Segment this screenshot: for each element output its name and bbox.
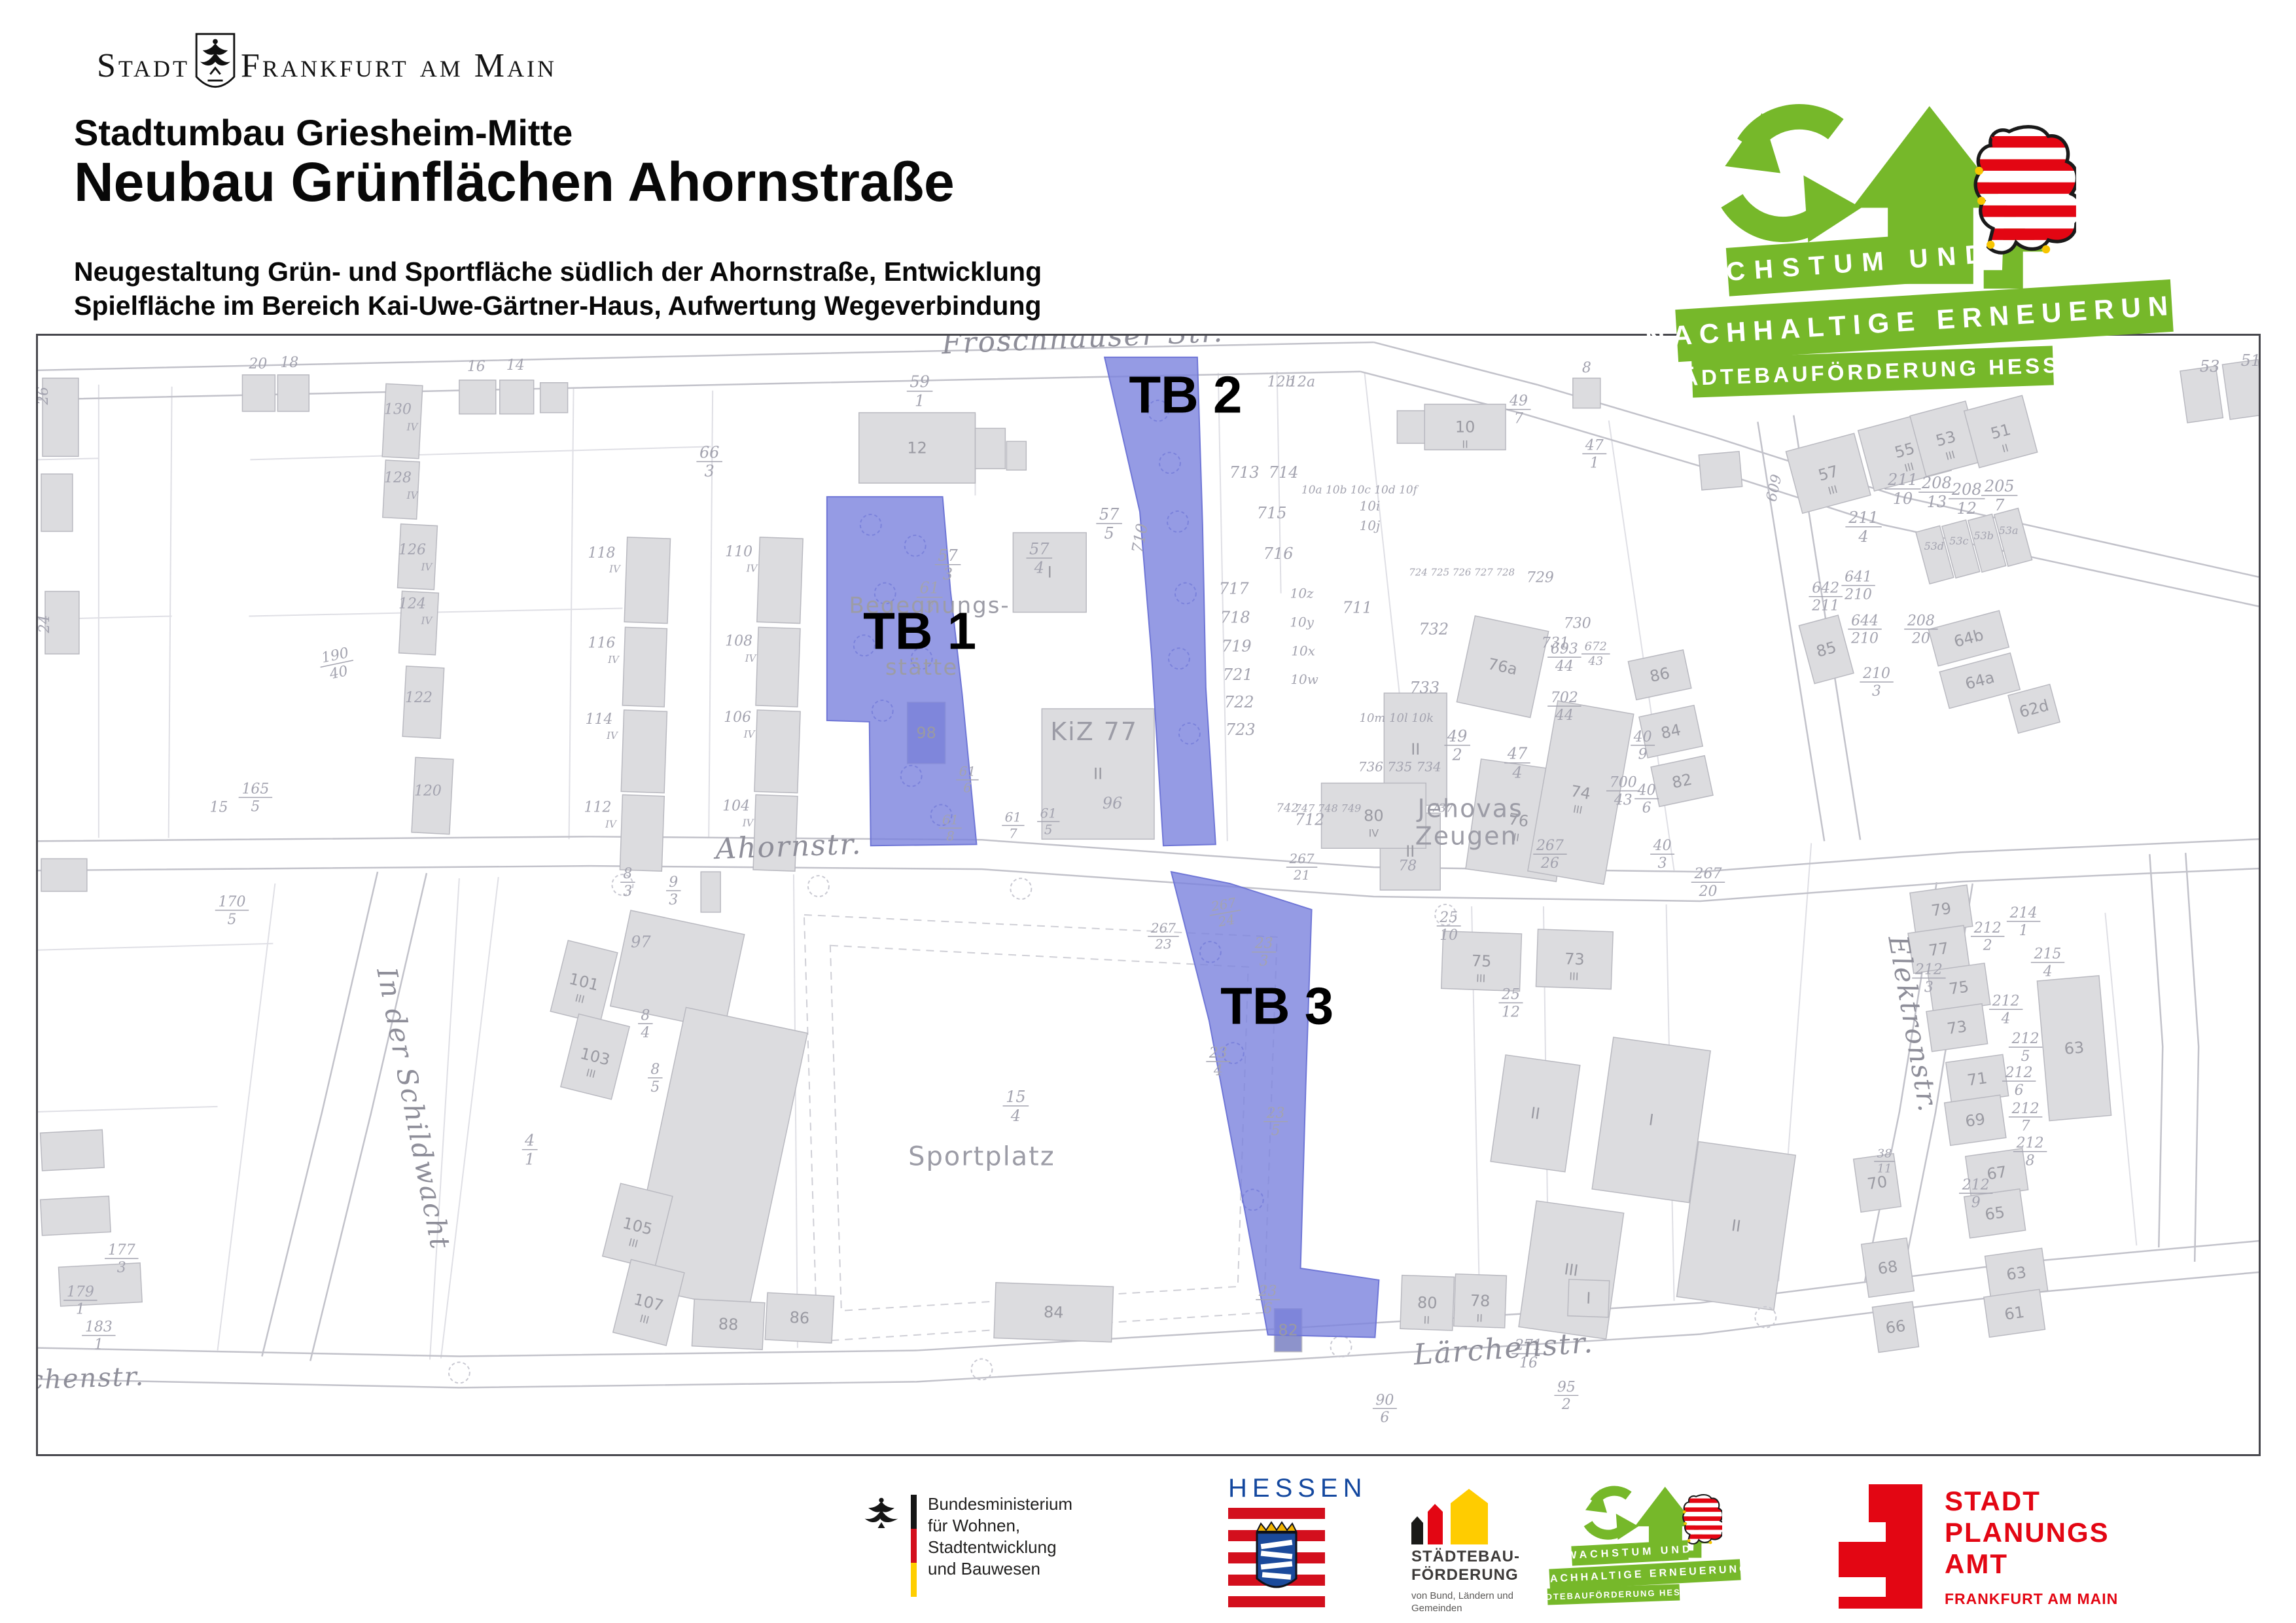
svg-text:20: 20 xyxy=(1911,630,1930,647)
svg-text:729: 729 xyxy=(1527,570,1554,586)
svg-text:47: 47 xyxy=(1585,437,1604,454)
svg-text:TB 1: TB 1 xyxy=(863,601,976,660)
svg-text:20: 20 xyxy=(248,356,267,372)
svg-text:212: 212 xyxy=(2005,1065,2033,1081)
parcel-label: IV xyxy=(606,730,619,741)
svg-text:6: 6 xyxy=(963,780,972,796)
svg-text:13: 13 xyxy=(1927,493,1947,511)
parcel-label: 713 xyxy=(1229,463,1260,482)
parcel-label: 715 xyxy=(1257,504,1287,522)
building-label: 82 xyxy=(1278,1321,1298,1340)
parcel-boundary-line xyxy=(250,446,711,459)
svg-text:212: 212 xyxy=(1973,920,2002,936)
spa-line4: FRANKFURT AM MAIN xyxy=(1945,1590,2118,1608)
parcel-label: 122 xyxy=(405,690,433,706)
svg-text:65: 65 xyxy=(1984,1203,2006,1224)
svg-text:8: 8 xyxy=(2026,1153,2035,1169)
svg-text:714: 714 xyxy=(1269,463,1299,482)
parcel-label: 10i xyxy=(1360,498,1381,514)
building xyxy=(540,383,568,413)
parcel-label: 114 xyxy=(586,711,613,728)
svg-text:III: III xyxy=(1476,972,1486,984)
svg-text:116: 116 xyxy=(588,635,616,651)
svg-text:9: 9 xyxy=(669,874,678,891)
building xyxy=(620,794,664,871)
building-label: II xyxy=(1411,740,1420,758)
parcel-label: IV xyxy=(607,654,620,666)
building-label: 88 xyxy=(718,1315,739,1334)
parcel-label: 83 xyxy=(620,866,635,900)
svg-text:69: 69 xyxy=(1964,1110,1987,1131)
svg-text:1: 1 xyxy=(1590,455,1599,471)
svg-text:10j: 10j xyxy=(1360,518,1381,533)
parcel-label: 116 xyxy=(588,635,616,651)
parcel-label: 96 xyxy=(1103,794,1122,812)
parcel-label: 118 xyxy=(588,545,616,562)
svg-text:47: 47 xyxy=(1507,745,1528,763)
svg-text:1: 1 xyxy=(94,1337,103,1353)
svg-text:59: 59 xyxy=(910,373,929,391)
spa-line2: PLANUNGS xyxy=(1945,1517,2110,1548)
svg-text:719: 719 xyxy=(1222,637,1252,655)
building xyxy=(624,537,670,624)
svg-text:79: 79 xyxy=(1930,899,1952,920)
building-label: 65 xyxy=(1984,1203,2006,1224)
svg-text:38: 38 xyxy=(1877,1147,1892,1161)
parcel-label: 20 xyxy=(248,356,267,372)
svg-text:718: 718 xyxy=(1220,608,1250,626)
svg-text:4: 4 xyxy=(1858,527,1868,546)
parcel-label: 41 xyxy=(522,1132,538,1169)
building xyxy=(41,1196,111,1236)
svg-text:26: 26 xyxy=(38,387,52,406)
svg-text:7: 7 xyxy=(1994,496,2005,514)
parcel-label: 2512 xyxy=(1499,986,1523,1020)
svg-text:641: 641 xyxy=(1845,569,1872,586)
parcel-label: 14 xyxy=(506,357,525,374)
building xyxy=(610,910,745,1030)
tree-symbol xyxy=(808,876,829,897)
svg-text:40: 40 xyxy=(328,663,350,683)
sportplatz-field-outline xyxy=(830,946,1248,1311)
svg-text:700: 700 xyxy=(1610,775,1637,791)
svg-text:12b: 12b xyxy=(1267,374,1295,391)
svg-text:Jehovas: Jehovas xyxy=(1417,794,1523,823)
parcel-label: 106 xyxy=(724,709,751,726)
parcel-label: 952 xyxy=(1554,1379,1578,1413)
svg-text:733: 733 xyxy=(1409,679,1439,697)
svg-text:16: 16 xyxy=(467,359,486,375)
svg-text:84: 84 xyxy=(1044,1303,1064,1322)
svg-text:208: 208 xyxy=(1907,613,1935,629)
svg-text:98: 98 xyxy=(916,724,936,742)
street-schildwacht-w xyxy=(262,872,378,1356)
plan-page: Stadt Frankfurt am Main Stadtumbau Gries… xyxy=(0,0,2296,1623)
parcel-label: 112 xyxy=(584,799,612,815)
stadtplanungsamt-logo: STADT PLANUNGS AMT FRANKFURT AM MAIN xyxy=(1839,1480,2205,1618)
sbf-sub2: Gemeinden xyxy=(1411,1602,1562,1614)
bundesadler-icon xyxy=(862,1495,900,1535)
svg-text:IV: IV xyxy=(406,421,419,433)
svg-text:Ahornstr.: Ahornstr. xyxy=(713,827,863,866)
svg-text:717: 717 xyxy=(1219,580,1249,598)
building xyxy=(756,627,800,707)
svg-text:208: 208 xyxy=(1951,480,1982,499)
svg-text:5: 5 xyxy=(227,912,236,928)
parcel-label: 712 xyxy=(1295,810,1325,829)
svg-text:77: 77 xyxy=(1928,939,1950,960)
parcel-label: 20813 xyxy=(1918,474,1954,511)
parcel-label: 24 xyxy=(38,615,53,634)
place-label: Zeugen xyxy=(1415,821,1518,850)
svg-text:212: 212 xyxy=(1962,1177,1990,1193)
svg-text:693: 693 xyxy=(1551,641,1578,657)
parcel-label: 641210 xyxy=(1841,569,1875,603)
street-ahorn-n xyxy=(38,836,2259,872)
svg-text:721: 721 xyxy=(1223,666,1253,684)
svg-text:10x: 10x xyxy=(1291,643,1315,658)
svg-text:57: 57 xyxy=(938,546,958,565)
tree-symbol xyxy=(1331,1336,1352,1357)
city-logo-stadt: Stadt xyxy=(97,46,190,85)
parcel-label: 403 xyxy=(1650,838,1674,872)
svg-text:6: 6 xyxy=(1263,1301,1273,1317)
svg-text:170: 170 xyxy=(219,894,246,910)
svg-text:715: 715 xyxy=(1257,504,1287,522)
parcel-label: 736 735 734 xyxy=(1358,759,1441,775)
building-label: III xyxy=(1563,1260,1580,1280)
svg-text:23: 23 xyxy=(1258,1283,1277,1300)
street-name-label: chenstr. xyxy=(38,1361,145,1395)
svg-text:18: 18 xyxy=(280,355,298,371)
svg-text:12: 12 xyxy=(1957,499,1977,518)
parcel-label: 21110 xyxy=(1884,471,1920,508)
svg-text:1: 1 xyxy=(2019,923,2028,939)
parcel-label: 2103 xyxy=(1860,666,1893,700)
parcel-label: 663 xyxy=(696,443,722,480)
parcel-boundary-line xyxy=(569,388,574,840)
svg-text:118: 118 xyxy=(588,545,616,562)
svg-text:80: 80 xyxy=(1364,806,1383,825)
building xyxy=(975,429,1005,469)
parcel-label: 644210 xyxy=(1848,613,1881,647)
svg-text:2: 2 xyxy=(1452,746,1462,764)
map-canvas: 1298IIIIIII80IV76a10II76II74III86848257I… xyxy=(38,336,2259,1454)
parcel-label: 53b xyxy=(1973,529,1994,542)
svg-text:6: 6 xyxy=(1380,1410,1389,1426)
parcel-label: 721 xyxy=(1223,666,1253,684)
parcel-label: 2510 xyxy=(1437,910,1461,944)
svg-text:23: 23 xyxy=(1254,936,1273,952)
svg-text:51: 51 xyxy=(2241,351,2259,370)
building xyxy=(500,380,534,414)
svg-text:3: 3 xyxy=(943,565,953,584)
svg-text:IV: IV xyxy=(605,818,618,830)
svg-text:5: 5 xyxy=(2021,1048,2030,1065)
svg-text:chenstr.: chenstr. xyxy=(38,1361,145,1395)
footer-logos: Bundesministerium für Wohnen, Stadtentwi… xyxy=(0,1466,2296,1623)
parcel-label: 10j xyxy=(1360,518,1381,533)
svg-text:66: 66 xyxy=(1884,1317,1907,1338)
svg-text:4: 4 xyxy=(2001,1010,2011,1027)
svg-text:74: 74 xyxy=(1569,782,1592,804)
svg-text:73: 73 xyxy=(1564,950,1585,969)
svg-text:23: 23 xyxy=(1154,936,1171,952)
parcel-label: 617 xyxy=(1002,809,1024,841)
parcel-label: 733 xyxy=(1409,679,1439,697)
parcel-label: 2127 xyxy=(2009,1101,2042,1135)
svg-text:713: 713 xyxy=(1229,463,1260,482)
parcel-label: 10m 10l 10k xyxy=(1360,711,1434,725)
building xyxy=(754,710,800,793)
svg-text:267: 267 xyxy=(1536,838,1564,854)
svg-text:IV: IV xyxy=(421,562,434,573)
parcel-label: 718 xyxy=(1220,608,1250,626)
parcel-boundary-line xyxy=(794,874,798,1347)
svg-text:8: 8 xyxy=(650,1061,660,1078)
svg-text:642: 642 xyxy=(1812,580,1839,597)
svg-text:212: 212 xyxy=(1992,993,2020,1009)
svg-text:4: 4 xyxy=(1034,559,1044,577)
parcel-label: 722 xyxy=(1224,693,1254,711)
parcel-label: 729 xyxy=(1527,570,1554,586)
parcel-label: 10w xyxy=(1290,671,1318,687)
parcel-label: IV xyxy=(745,652,758,664)
street-name-label: Lärchenstr. xyxy=(1412,1326,1595,1372)
svg-text:80: 80 xyxy=(1417,1293,1438,1312)
svg-text:14: 14 xyxy=(506,357,525,374)
parcel-label: 471 xyxy=(1582,437,1606,471)
svg-text:97: 97 xyxy=(631,933,651,952)
subtitle-line2: Spielfläche im Bereich Kai-Uwe-Gärtner-H… xyxy=(74,291,1042,321)
svg-text:IV: IV xyxy=(743,728,756,740)
building xyxy=(277,375,309,412)
parcel-label: 128 xyxy=(384,470,412,486)
parcel-label: IV xyxy=(609,563,622,575)
tb-label: TB 3 xyxy=(1220,976,1333,1035)
parcel-label: 1655 xyxy=(239,781,272,815)
parcel-label: 642211 xyxy=(1809,580,1842,615)
place-label: KiZ 77 xyxy=(1050,717,1138,746)
parcel-label: 2141 xyxy=(2007,905,2040,939)
tree-symbol xyxy=(971,1359,992,1380)
svg-text:8: 8 xyxy=(623,866,632,882)
svg-text:724 725 726 727 728: 724 725 726 727 728 xyxy=(1409,567,1515,579)
svg-text:10w: 10w xyxy=(1290,671,1318,687)
svg-text:10: 10 xyxy=(1439,927,1458,944)
parcel-label: 591 xyxy=(907,373,933,410)
svg-text:78: 78 xyxy=(1470,1291,1490,1310)
svg-text:53d: 53d xyxy=(1924,540,1945,552)
building xyxy=(41,1130,105,1171)
building-label: II xyxy=(1093,765,1103,783)
svg-text:267: 267 xyxy=(1150,920,1176,936)
parcel-label: 18 xyxy=(280,355,298,371)
svg-text:211: 211 xyxy=(1811,598,1839,615)
svg-text:KiZ 77: KiZ 77 xyxy=(1050,717,1138,746)
svg-text:73: 73 xyxy=(1946,1017,1968,1038)
svg-text:II: II xyxy=(1462,438,1468,450)
houses-icon xyxy=(1411,1489,1493,1544)
parcel-label: 53a xyxy=(1999,524,2019,537)
svg-text:63: 63 xyxy=(2064,1038,2085,1058)
svg-text:3: 3 xyxy=(1658,855,1667,872)
svg-text:723: 723 xyxy=(1226,721,1256,739)
svg-text:10z: 10z xyxy=(1290,586,1314,601)
svg-text:4: 4 xyxy=(1010,1107,1021,1125)
svg-text:I: I xyxy=(1048,563,1052,582)
parcel-boundary-line xyxy=(38,944,273,950)
svg-text:702: 702 xyxy=(1551,690,1578,706)
svg-text:21: 21 xyxy=(1293,867,1310,883)
building-label: 77 xyxy=(1928,939,1950,960)
svg-text:61: 61 xyxy=(2004,1303,2026,1324)
building xyxy=(621,710,667,793)
parcel-label: 120 xyxy=(414,783,442,800)
subtitle-line1: Neugestaltung Grün- und Sportfläche südl… xyxy=(74,257,1042,287)
spa-line1: STADT xyxy=(1945,1486,2041,1517)
svg-text:53c: 53c xyxy=(1949,535,1968,547)
svg-text:TB 2: TB 2 xyxy=(1129,366,1242,424)
street-laerchen-s xyxy=(38,1272,2259,1387)
svg-text:II: II xyxy=(1093,765,1103,783)
parcel-label: 2154 xyxy=(2031,946,2064,980)
svg-text:75: 75 xyxy=(1471,952,1491,971)
frankfurt-eagle-icon xyxy=(195,33,236,98)
svg-text:114: 114 xyxy=(586,711,613,728)
parcel-label: 732 xyxy=(1419,620,1449,638)
svg-text:211: 211 xyxy=(1887,471,1918,489)
svg-text:124: 124 xyxy=(398,596,426,613)
parcel-label: 2114 xyxy=(1845,508,1881,546)
svg-text:6: 6 xyxy=(2015,1082,2024,1099)
svg-text:IV: IV xyxy=(421,615,434,626)
svg-text:130: 130 xyxy=(384,402,412,418)
svg-text:40: 40 xyxy=(1637,783,1656,799)
svg-text:1: 1 xyxy=(915,392,925,410)
bmwsb-line3: und Bauwesen xyxy=(928,1558,1137,1580)
svg-text:3: 3 xyxy=(669,892,678,908)
parcel-label: 2057 xyxy=(1981,477,2017,514)
parcel-label: 2125 xyxy=(2009,1031,2042,1065)
svg-text:71: 71 xyxy=(1966,1069,1988,1090)
svg-text:25: 25 xyxy=(1501,986,1520,1003)
street-name-label: In der Schildwacht xyxy=(370,964,457,1252)
parcel-label: 730 xyxy=(1564,615,1591,632)
svg-text:49: 49 xyxy=(1509,393,1528,410)
building-label: 84 xyxy=(1044,1303,1064,1322)
parcel-label: 53d xyxy=(1924,540,1945,552)
svg-text:108: 108 xyxy=(725,633,752,649)
svg-text:In der Schildwacht: In der Schildwacht xyxy=(370,964,457,1252)
svg-text:2: 2 xyxy=(1983,938,1992,954)
building-label: 71 xyxy=(1966,1069,1988,1090)
svg-text:644: 644 xyxy=(1851,613,1879,629)
svg-text:212: 212 xyxy=(2016,1135,2044,1152)
building xyxy=(1006,441,1026,470)
parcel-label: 104 xyxy=(722,798,750,814)
svg-text:IV: IV xyxy=(406,490,419,501)
svg-text:732: 732 xyxy=(1419,620,1449,638)
svg-text:24: 24 xyxy=(38,615,53,634)
svg-text:120: 120 xyxy=(414,783,442,800)
svg-text:IV: IV xyxy=(607,654,620,666)
svg-text:716: 716 xyxy=(1263,544,1294,563)
building xyxy=(622,627,667,707)
svg-text:15: 15 xyxy=(1006,1088,1025,1106)
svg-text:43: 43 xyxy=(1587,654,1603,668)
svg-text:5: 5 xyxy=(1104,524,1114,543)
parcel-label: 575 xyxy=(1096,505,1122,543)
parcel-label: 10z xyxy=(1290,586,1314,601)
parcel-label: 492 xyxy=(1444,727,1470,764)
svg-text:1: 1 xyxy=(525,1150,535,1169)
street-east-w xyxy=(2149,854,2163,1247)
bmwsb-line1: Bundesministerium xyxy=(928,1493,1137,1515)
svg-text:208: 208 xyxy=(1921,474,1952,492)
parcel-label: IV xyxy=(406,421,419,433)
street-name-label: Ahornstr. xyxy=(713,827,863,866)
svg-text:4: 4 xyxy=(1511,764,1522,782)
page-title: Neubau Grünflächen Ahornstraße xyxy=(74,151,955,214)
bmwsb-logo: Bundesministerium für Wohnen, Stadtentwi… xyxy=(862,1486,1137,1616)
parcel-label: 154 xyxy=(1003,1088,1029,1125)
svg-text:214: 214 xyxy=(2009,905,2038,921)
parcel-boundary-line xyxy=(441,877,499,1358)
svg-text:711: 711 xyxy=(1343,599,1373,617)
svg-text:126: 126 xyxy=(398,542,426,558)
svg-text:3: 3 xyxy=(623,883,632,900)
svg-text:78: 78 xyxy=(1398,858,1417,874)
parcel-boundary-line xyxy=(38,1107,218,1112)
building xyxy=(1699,452,1742,490)
parcel-label: IV xyxy=(421,562,434,573)
parcel-label: 108 xyxy=(725,633,752,649)
city-logo: Stadt Frankfurt am Main xyxy=(97,33,557,98)
parcel-label: 67243 xyxy=(1581,639,1610,668)
parcel-label: 906 xyxy=(1373,1392,1397,1426)
bmwsb-line2: für Wohnen, Stadtentwicklung xyxy=(928,1515,1137,1558)
svg-text:5: 5 xyxy=(650,1079,660,1096)
parcel-label: 15 xyxy=(210,799,228,815)
svg-text:86: 86 xyxy=(789,1308,810,1328)
building-label: 63 xyxy=(2064,1038,2085,1058)
svg-text:110: 110 xyxy=(725,544,752,560)
parcel-label: 26720 xyxy=(1691,866,1725,900)
svg-text:10y: 10y xyxy=(1290,614,1314,630)
stadtplanungsamt-icon xyxy=(1839,1484,1922,1609)
parcel-label: 10x xyxy=(1291,643,1315,658)
svg-text:210: 210 xyxy=(1850,630,1879,647)
building xyxy=(701,872,720,912)
parcel-label: IV xyxy=(421,615,434,626)
svg-text:23: 23 xyxy=(1266,1105,1285,1122)
parcel-label: 406 xyxy=(1634,783,1659,817)
svg-text:40: 40 xyxy=(1633,729,1652,745)
svg-text:44: 44 xyxy=(1555,658,1574,675)
parcel-label: 2124 xyxy=(1989,993,2022,1027)
building xyxy=(41,859,87,891)
svg-text:III: III xyxy=(1569,970,1579,982)
parcel-label: 97 xyxy=(631,933,651,952)
svg-text:68: 68 xyxy=(1877,1257,1899,1278)
parcel-label: 26723 xyxy=(1148,920,1179,952)
german-flag-bar-icon xyxy=(911,1495,917,1597)
building xyxy=(242,375,275,412)
parcel-label: 10a 10b 10c 10d 10f xyxy=(1301,483,1419,496)
svg-text:12: 12 xyxy=(1502,1004,1520,1020)
svg-text:712: 712 xyxy=(1295,810,1325,829)
